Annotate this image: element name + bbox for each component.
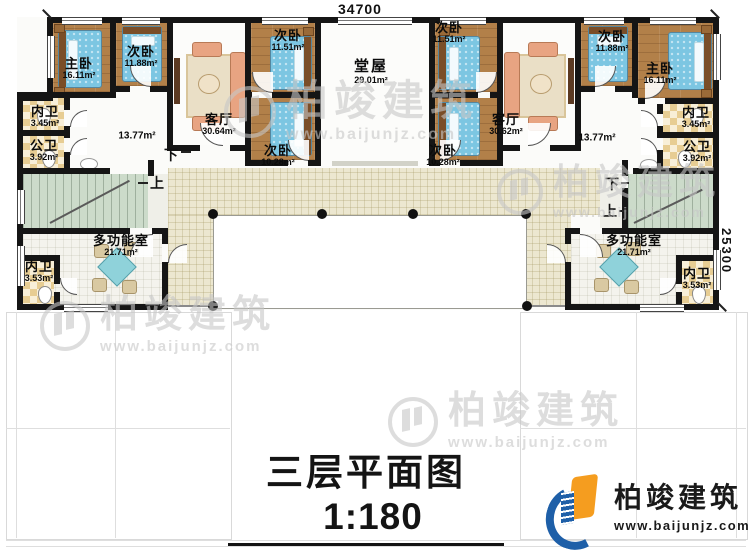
wall bbox=[565, 262, 571, 310]
room-label-master-bedroom-left: 主卧16.11m² bbox=[62, 57, 95, 81]
chair bbox=[92, 278, 107, 292]
room-label-master-bedroom-right: 主卧16.11m² bbox=[643, 62, 676, 86]
window bbox=[338, 17, 412, 25]
window bbox=[584, 17, 624, 25]
lower-floor-line bbox=[520, 428, 746, 429]
wall bbox=[676, 261, 682, 284]
armchair bbox=[528, 42, 558, 57]
watermark-logo-icon bbox=[388, 397, 438, 447]
lower-floor-line bbox=[16, 312, 17, 538]
stair-down-label-left: 下 bbox=[164, 145, 178, 165]
wall bbox=[657, 126, 663, 138]
room-label-inner-bath-left-lower: 内卫3.53m² bbox=[25, 260, 54, 284]
step-mark bbox=[138, 182, 148, 184]
coffee-table bbox=[530, 74, 552, 94]
drawing-scale: 1:180 bbox=[323, 496, 423, 537]
wall bbox=[245, 92, 252, 98]
balcony-corridor bbox=[168, 168, 600, 215]
brand-name: 柏竣建筑 bbox=[614, 484, 750, 512]
column-dot bbox=[208, 209, 218, 219]
column-dot bbox=[521, 209, 531, 219]
wall bbox=[54, 292, 60, 304]
wall bbox=[167, 23, 173, 145]
window bbox=[713, 34, 721, 80]
title-underline bbox=[228, 543, 504, 546]
wall bbox=[150, 86, 173, 92]
window bbox=[650, 17, 696, 25]
window bbox=[64, 304, 108, 312]
wall bbox=[665, 98, 719, 104]
wall bbox=[565, 234, 571, 244]
nightstand bbox=[701, 25, 712, 34]
drawing-title: 三层平面图1:180 bbox=[228, 442, 504, 538]
wall bbox=[575, 23, 581, 145]
tv-cabinet bbox=[568, 58, 574, 104]
brand-logo-icon bbox=[546, 474, 608, 542]
wall bbox=[429, 92, 478, 98]
stairwell-left bbox=[23, 174, 148, 228]
step-mark bbox=[619, 210, 627, 212]
wall bbox=[633, 168, 719, 174]
wall bbox=[550, 145, 581, 151]
stair-up-label-right: 上 bbox=[603, 201, 617, 221]
wall bbox=[575, 86, 595, 92]
tv-cabinet bbox=[174, 58, 180, 104]
corridor-area-left: 13.77m² bbox=[118, 131, 155, 142]
wall bbox=[460, 160, 503, 166]
wall bbox=[110, 23, 116, 92]
room-label-bedroom-topleft: 次卧11.88m² bbox=[124, 45, 157, 69]
lower-floor-line bbox=[6, 428, 230, 429]
wall bbox=[54, 261, 60, 284]
sofa bbox=[230, 52, 246, 118]
brand-site: www.baijunjz.com bbox=[614, 518, 750, 533]
room-main-hall bbox=[321, 23, 429, 166]
window bbox=[122, 17, 160, 25]
drawing-title-block: 三层平面图1:180 本层建筑面积：438.86m²层高：4.0m bbox=[228, 442, 504, 557]
wall bbox=[64, 126, 70, 138]
column-dot bbox=[317, 209, 327, 219]
room-label-inner-bath-right-lower: 内卫3.53m² bbox=[683, 267, 712, 291]
wall bbox=[64, 152, 70, 174]
wall bbox=[676, 292, 682, 304]
armchair bbox=[192, 42, 222, 57]
nightstand bbox=[54, 24, 65, 33]
column-dot bbox=[408, 209, 418, 219]
window bbox=[640, 304, 684, 312]
wall bbox=[110, 86, 130, 92]
floor-plan-drawing: 34700 25300 bbox=[0, 0, 750, 557]
chair bbox=[122, 280, 137, 294]
wall bbox=[622, 188, 628, 230]
corridor-area-right: 13.77m² bbox=[578, 133, 615, 144]
column-dot bbox=[522, 301, 532, 311]
page-title: 三层平面图 bbox=[266, 452, 466, 493]
wall bbox=[64, 98, 70, 110]
window bbox=[17, 190, 25, 224]
top-dimension: 34700 bbox=[338, 1, 382, 17]
balcony-edge bbox=[526, 305, 566, 307]
wall bbox=[657, 104, 663, 114]
nightstand bbox=[701, 89, 712, 98]
room-label-inner-bath-right: 内卫3.45m² bbox=[682, 106, 711, 130]
room-label-public-bath-right: 公卫3.92m² bbox=[683, 140, 712, 164]
courtyard-void bbox=[213, 215, 527, 309]
wall bbox=[162, 234, 168, 244]
wall bbox=[230, 145, 251, 151]
room-label-bedroom-topright: 次卧11.88m² bbox=[595, 30, 628, 54]
window bbox=[62, 17, 102, 25]
wall bbox=[497, 145, 520, 151]
right-dimension: 25300 bbox=[719, 228, 734, 274]
step-mark bbox=[181, 151, 191, 153]
room-label-public-bath-left: 公卫3.92m² bbox=[30, 139, 59, 163]
room-label-livingroom-right: 客厅30.62m² bbox=[489, 113, 523, 137]
room-label-multifunction-right: 多功能室21.71m² bbox=[606, 234, 662, 258]
window bbox=[47, 36, 55, 78]
wall bbox=[272, 92, 321, 98]
brand-logo: 柏竣建筑 www.baijunjz.com bbox=[546, 474, 750, 542]
wall bbox=[17, 130, 70, 136]
column-dot bbox=[208, 301, 218, 311]
wall bbox=[615, 86, 638, 92]
sofa bbox=[504, 52, 520, 118]
step-mark bbox=[621, 182, 629, 184]
chair bbox=[624, 280, 639, 294]
wall bbox=[162, 262, 168, 310]
lower-floor-line bbox=[115, 312, 116, 538]
stair-down-label-right: 下 bbox=[605, 174, 619, 194]
window bbox=[262, 17, 308, 25]
room-label-main-hall: 堂屋29.01m² bbox=[354, 59, 388, 85]
wall bbox=[638, 98, 645, 104]
wall bbox=[490, 92, 503, 98]
wall bbox=[663, 132, 719, 138]
room-label-bedroom-left-upper: 次卧11.51m² bbox=[271, 29, 304, 53]
lower-floor-outline-left bbox=[6, 312, 232, 540]
room-label-bedroom-right-lower: 次卧10.28m² bbox=[426, 144, 460, 168]
room-label-inner-bath-left: 内卫3.45m² bbox=[31, 105, 60, 129]
wall bbox=[622, 160, 628, 176]
chair bbox=[594, 278, 609, 292]
room-label-multifunction-left: 多功能室21.71m² bbox=[93, 234, 149, 258]
wall bbox=[657, 150, 663, 168]
main-hall-opening bbox=[332, 161, 418, 166]
nightstand bbox=[303, 27, 314, 36]
stair-up-label-left: 上 bbox=[150, 173, 164, 193]
room-label-livingroom-left: 客厅30.64m² bbox=[202, 113, 236, 137]
wall bbox=[308, 160, 321, 166]
room-label-bedroom-right-upper: 次卧11.51m² bbox=[432, 21, 465, 45]
coffee-table bbox=[198, 74, 220, 94]
room-label-bedroom-left-lower: 次卧10.28m² bbox=[261, 144, 295, 168]
